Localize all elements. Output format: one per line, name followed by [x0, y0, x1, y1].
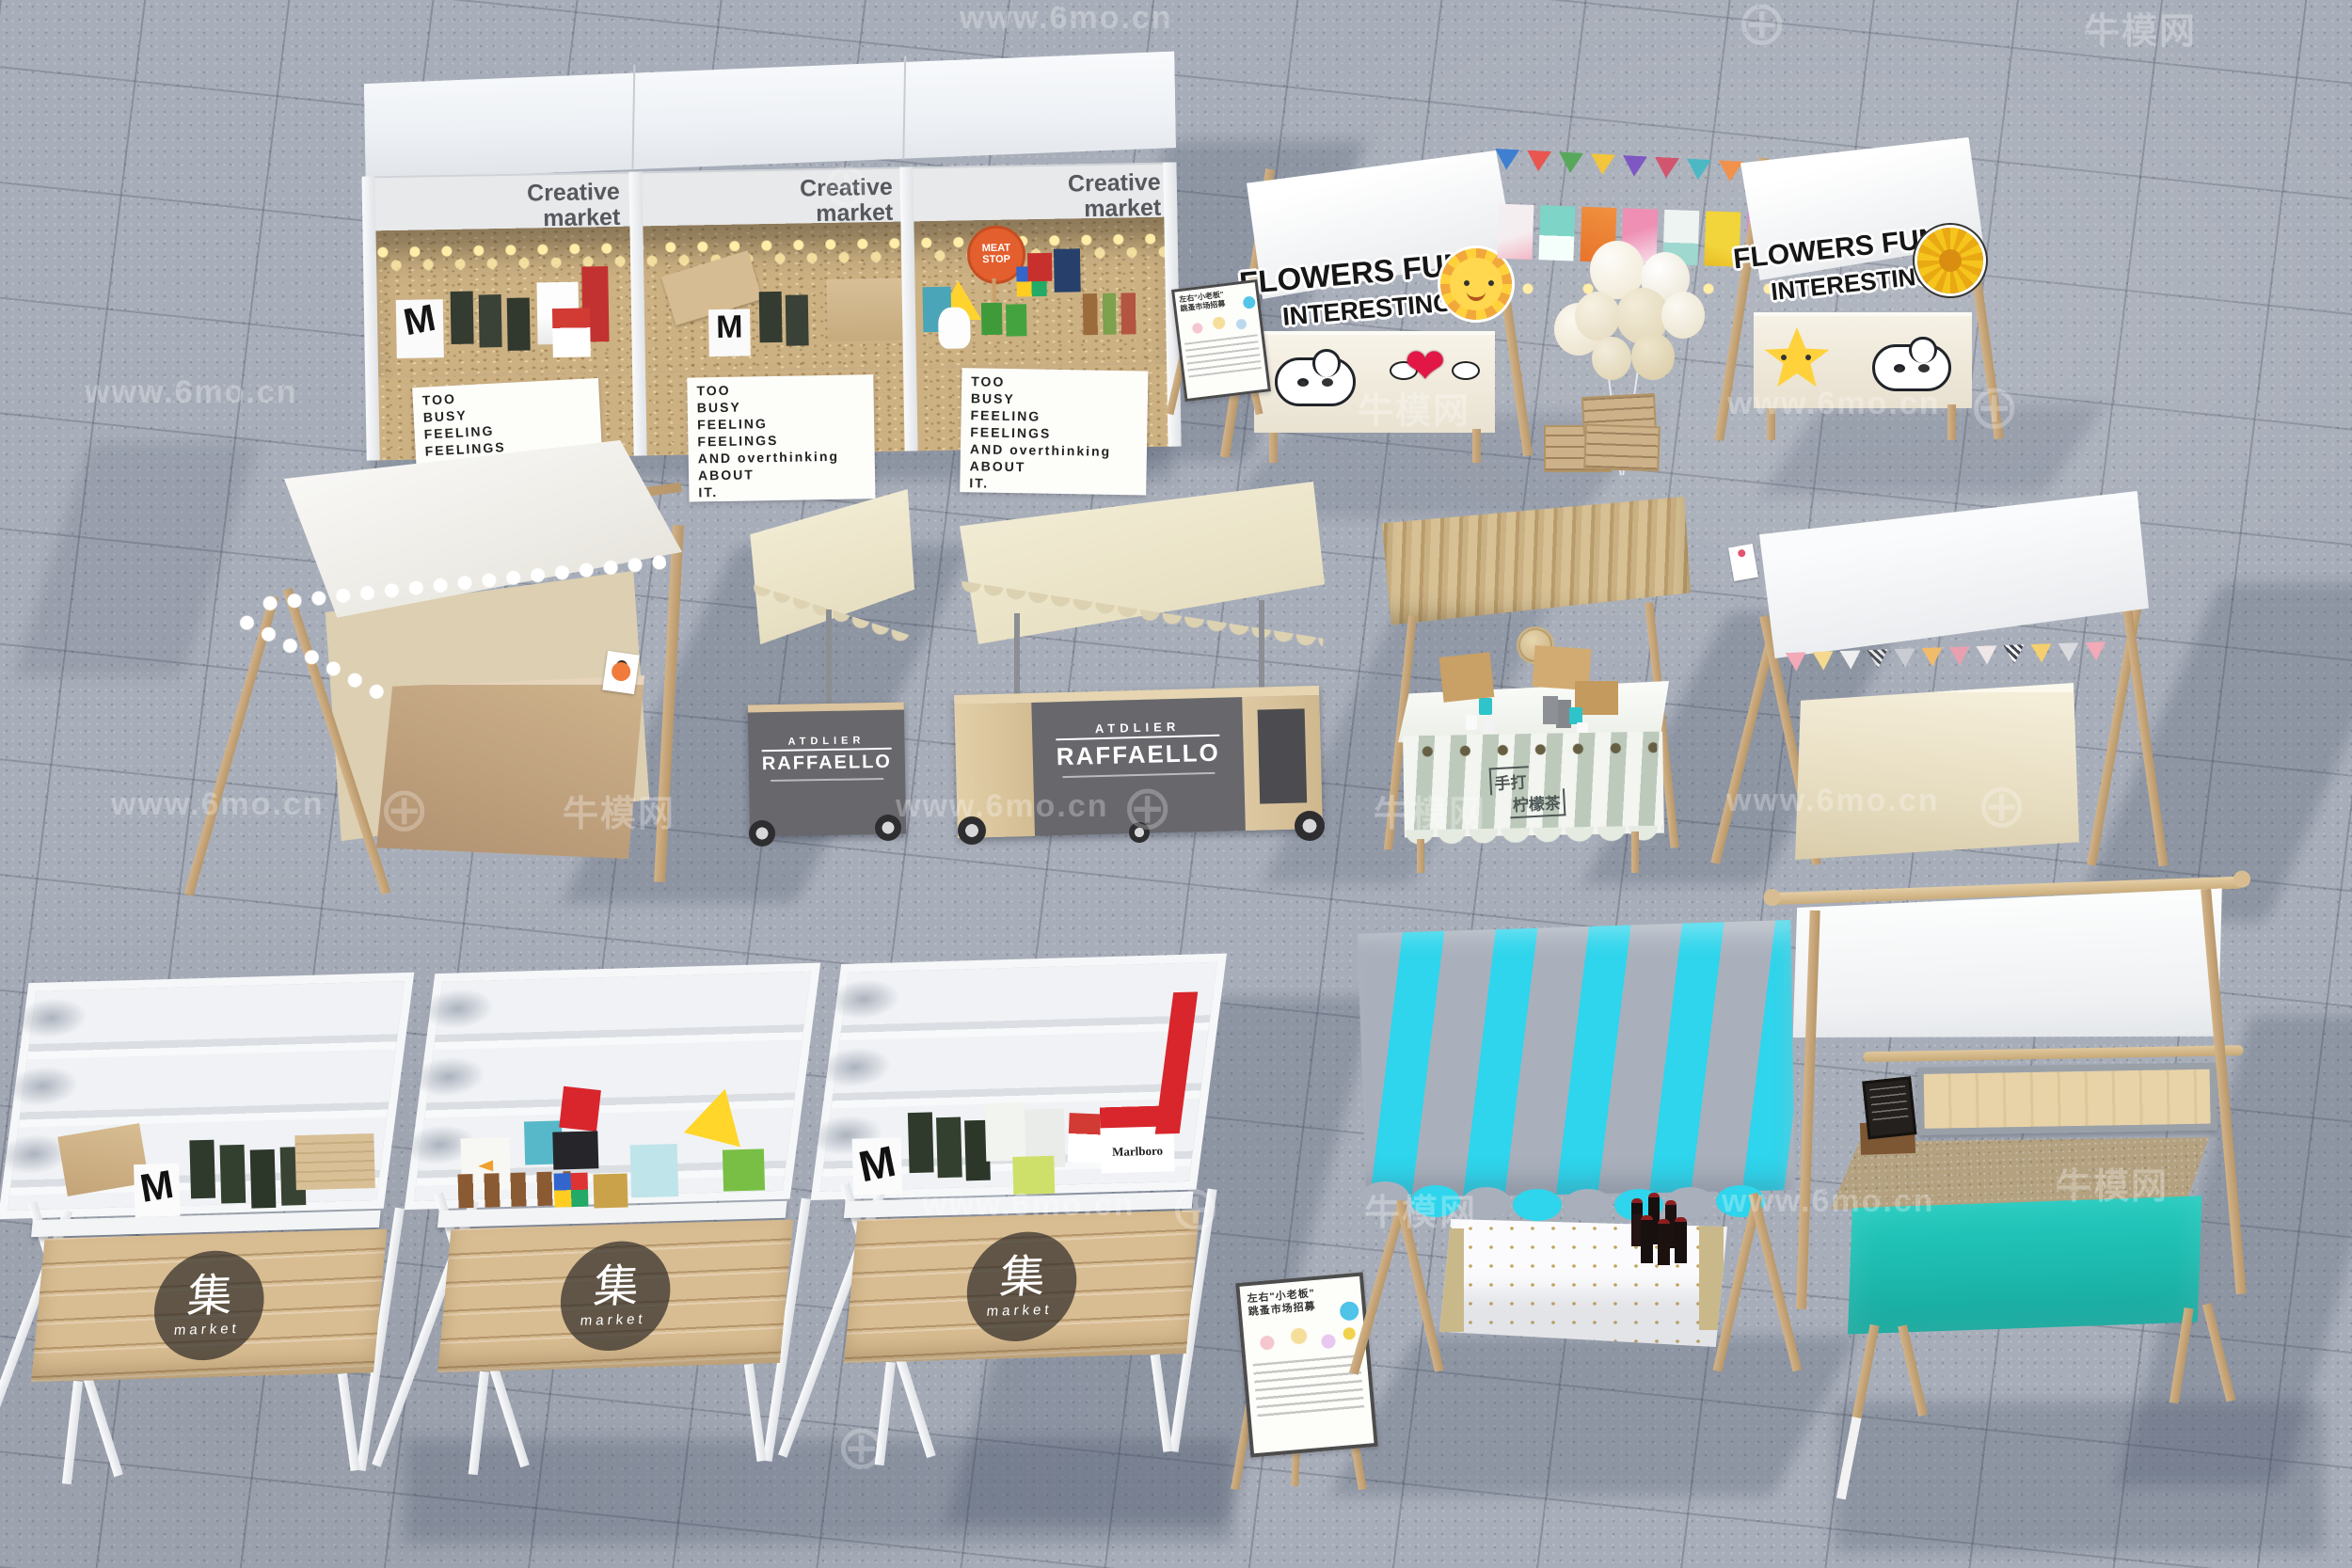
red-box [559, 1086, 601, 1132]
cart-wheel [1295, 811, 1325, 841]
watermark-brand: 牛模网 [1364, 1183, 1477, 1235]
plaque-line2: 柠檬茶 [1509, 788, 1565, 818]
cloth-table [1795, 683, 2079, 860]
product-box [451, 292, 474, 344]
watermark-logo: ⊕ [835, 1411, 889, 1483]
tag-dot [1738, 549, 1746, 558]
cart-pole [1014, 613, 1020, 704]
cart-awning [948, 482, 1325, 653]
character-card [602, 651, 640, 694]
green-pig-box [723, 1148, 765, 1191]
roof-billow [826, 978, 902, 1020]
watermark-brand: 牛模网 [2084, 2, 2197, 54]
cart-wheel [749, 820, 775, 847]
bunting-flag [2058, 642, 2079, 662]
dark-tea-packs [908, 1112, 934, 1173]
watermark-brand: 牛模网 [563, 784, 675, 836]
ji-market-badge: 集 market [150, 1249, 269, 1362]
marlboro-label: Marlboro [1112, 1144, 1163, 1160]
stall-roof [363, 52, 1176, 181]
watermark-site: www.6mo.cn [1722, 1183, 1935, 1220]
bunting-flag [1922, 647, 1944, 667]
bunting-flag [1867, 649, 1889, 669]
watermark-site: www.6mo.cn [922, 1187, 1136, 1224]
striped-awning [1353, 920, 1795, 1198]
kraft-stack [294, 1133, 375, 1190]
bunting-flag [2030, 643, 2052, 663]
white-cup [1466, 715, 1477, 730]
awning-scallop [1513, 1189, 1562, 1221]
ji-market-badge: 集 market [556, 1240, 675, 1353]
sunflower-center [1939, 249, 1962, 272]
stall-interior: M M MEAT STOP [366, 216, 1180, 377]
teal-counter-stall [1771, 866, 2271, 1433]
watermark-site: www.6mo.cn [111, 786, 325, 823]
counter-leg [1947, 404, 1956, 440]
cereal-boxes [985, 1102, 1026, 1162]
sun-face [1450, 258, 1502, 310]
easel-sign-bottom: 左右"小老板"跳蚤市场招募 [1228, 1270, 1374, 1491]
handwritten-sign: TOO BUSY FEELING FEELINGS AND overthinki… [687, 374, 875, 501]
rubik-boxes [554, 1173, 589, 1208]
bottle [1675, 1217, 1687, 1263]
beak [478, 1160, 493, 1171]
product-figures-small [1083, 293, 1150, 335]
marlboro-pack-red [1068, 1113, 1104, 1163]
handwritten-sign: TOO BUSY FEELING FEELINGS AND overthinki… [960, 368, 1148, 495]
character-figure [611, 661, 632, 683]
ji-logo-char: 集 [185, 1274, 235, 1320]
watermark-brand: 牛模网 [1358, 382, 1470, 434]
stall-leg [1417, 839, 1424, 873]
atelier-cart-small: ATDLIER RAFFAELLO [743, 489, 917, 879]
bunting-flag [1786, 652, 1807, 672]
sunflower-sticker [1917, 228, 1983, 293]
dark-box [552, 1131, 598, 1169]
product-card-m: M [708, 309, 751, 356]
watermark-logo: ⊕ [378, 773, 432, 846]
poster-body-lines [1253, 1354, 1365, 1418]
front-leg [469, 1371, 489, 1475]
chalkboard [1862, 1076, 1916, 1139]
counter-leg [1269, 433, 1278, 463]
cart-brand-main: RAFFAELLO [1056, 735, 1220, 772]
mini-poster [1497, 204, 1534, 260]
cloud-sticker [1275, 357, 1356, 406]
wood-base: 集 market [437, 1220, 793, 1373]
cart-brand-top: ATDLIER [748, 735, 904, 749]
bunting-flag [1949, 646, 1971, 666]
bunting-flag [1840, 650, 1862, 670]
runner-cloth [1439, 1228, 1464, 1332]
cart-brand-main: RAFFAELLO [762, 748, 892, 775]
bottle [1658, 1219, 1670, 1265]
watermark-brand: 牛模网 [2056, 1157, 2169, 1209]
cart-pole [1259, 600, 1264, 698]
balloon [1592, 337, 1631, 380]
ji-stall-section: M 集 market [1, 973, 403, 1496]
ji-logo-char: 集 [998, 1255, 1048, 1301]
price-tag-card [1728, 544, 1758, 581]
awning-scallop [1564, 1189, 1613, 1221]
menu-board [1917, 1062, 2217, 1135]
watermark-site: www.6mo.cn [85, 374, 298, 411]
watermark-logo: ⊕ [1976, 769, 2029, 842]
product-card-m: M [396, 299, 444, 358]
market-stall-3d-scene: Creative market Creative market Creative… [0, 0, 2352, 1568]
bunting-flag [2085, 641, 2106, 661]
star-sticker [1763, 327, 1831, 391]
front-leg [62, 1381, 83, 1484]
header-label: Creative market [945, 170, 1162, 224]
product-box-red [1027, 253, 1053, 281]
ji-logo-sub: market [986, 1301, 1053, 1319]
wood-base: 集 market [31, 1229, 387, 1383]
bottle [1641, 1215, 1653, 1263]
ji-market-badge: 集 market [962, 1230, 1082, 1343]
front-leg [744, 1364, 767, 1462]
stall-leg [1631, 832, 1639, 873]
pennant [1590, 153, 1615, 175]
header-label: Creative market [404, 180, 621, 233]
product-box-green [981, 303, 1003, 335]
pennant [1622, 155, 1647, 177]
watermark-site: www.6mo.cn [1726, 783, 1940, 819]
slat-awning [1375, 497, 1691, 630]
bunting-flag [1813, 651, 1835, 671]
watermark-logo: ⊕ [1169, 1172, 1223, 1244]
watermark-site: www.6mo.cn [1727, 386, 1941, 422]
ji-stall-section: 集 market [407, 963, 809, 1486]
wine-bottles [1631, 1185, 1716, 1255]
cart-dark-inset [1258, 708, 1308, 803]
easel-sign-top: 左右"小老板"跳蚤市场招募 [1167, 278, 1264, 418]
balloon [1631, 333, 1675, 380]
watermark-brand: 牛模网 [1374, 784, 1486, 836]
x-leg [1898, 1324, 1928, 1417]
product-card-m: M [134, 1164, 181, 1217]
canvas-canopy [1788, 888, 2232, 1055]
pennant [1526, 150, 1551, 172]
balloon [1575, 292, 1620, 341]
watermark-logo: ⊕ [1968, 371, 2022, 443]
wooden-crate [1583, 424, 1661, 472]
watermark-logo: ⊕ [1121, 771, 1175, 844]
ji-logo-sub: market [173, 1320, 240, 1338]
product-kraft-stand [826, 278, 904, 341]
balloon [1661, 292, 1705, 339]
teal-cup [1479, 698, 1492, 715]
product-box-marlboro [552, 308, 591, 357]
blue-striped-stall [1353, 920, 1800, 1386]
product-box [759, 292, 783, 342]
front-leg [1151, 1354, 1173, 1451]
wood-base: 集 market [844, 1210, 1200, 1363]
cart-tagline-line [771, 778, 883, 782]
string-lights [1408, 739, 1657, 761]
cart-pole [826, 610, 832, 707]
x-leg [1852, 1324, 1880, 1418]
recruit-poster: 左右"小老板"跳蚤市场招募 [1171, 279, 1271, 402]
roof-billow [410, 1056, 486, 1098]
pennant [1654, 157, 1679, 179]
pennant [1494, 149, 1519, 170]
pennant [1686, 159, 1711, 181]
bar-knob [2233, 870, 2251, 888]
watermark-site: www.6mo.cn [896, 788, 1109, 825]
cart-logo: ATDLIER RAFFAELLO [1032, 718, 1244, 779]
roof-billow [817, 1047, 893, 1088]
creative-market-stall: Creative market Creative market Creative… [363, 52, 1181, 461]
roof-billow [420, 988, 496, 1029]
front-leg [338, 1373, 360, 1471]
wing [1452, 361, 1480, 380]
aframe-leg [2087, 586, 2145, 865]
poster-body-lines [1184, 334, 1262, 380]
cart-logo: ATDLIER RAFFAELLO [748, 735, 905, 783]
kraft-box [1439, 652, 1495, 702]
dark-tea-packs [189, 1140, 215, 1199]
counter-leg [1472, 429, 1481, 463]
pennant [1558, 151, 1583, 173]
teal-bird-box [630, 1144, 679, 1197]
gray-cups [1543, 696, 1558, 724]
product-figure [1054, 248, 1081, 292]
bunting-flag [2003, 644, 2025, 664]
bunting-flag [1976, 645, 1997, 665]
watermark-logo: ⊕ [820, 149, 874, 221]
product-penguin [938, 307, 971, 349]
x-leg [2202, 1303, 2235, 1402]
kraft-box [1575, 681, 1618, 715]
stall-canopy [1759, 491, 2149, 658]
chalk-lines [1869, 1085, 1909, 1125]
tea-plaque: 手打 柠檬茶 [1476, 763, 1592, 825]
ji-logo-char: 集 [592, 1264, 642, 1310]
cloud-sticker [1872, 344, 1951, 391]
watermark-site: www.6mo.cn [960, 0, 1173, 37]
product-card-m: M [852, 1137, 903, 1195]
front-bar [1863, 1045, 2243, 1062]
ji-logo-sub: market [580, 1310, 646, 1328]
roof-billow [4, 1066, 80, 1107]
watermark-logo: ⊕ [1736, 0, 1789, 59]
bunting-flag [1895, 648, 1916, 668]
roof-billow [13, 997, 89, 1038]
